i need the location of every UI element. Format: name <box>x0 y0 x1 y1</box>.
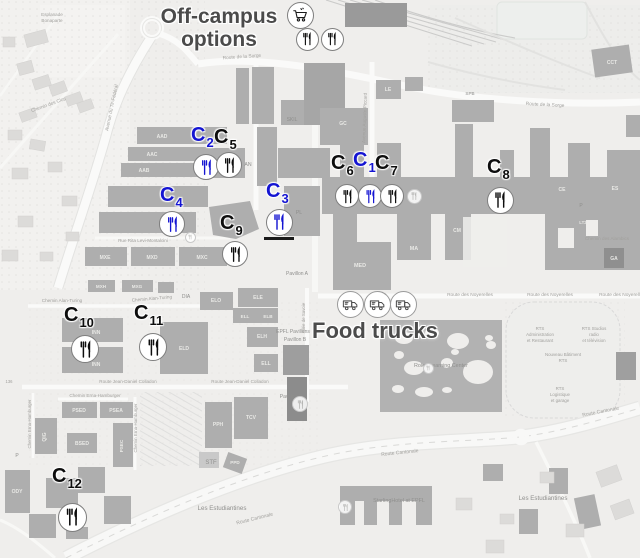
fork-knife-icon <box>75 339 96 360</box>
fork-knife-icon <box>409 191 419 201</box>
food-trucks-heading: Food trucks <box>312 319 438 342</box>
label-C2: C2 <box>191 125 214 149</box>
label-C10-subscript: 10 <box>79 316 93 329</box>
label-C3-subscript: 3 <box>281 192 288 205</box>
label-C4: C4 <box>160 185 183 209</box>
restaurant-marker-C12 <box>58 503 87 532</box>
restaurant-marker-C3 <box>266 209 293 236</box>
fork-knife-icon <box>490 190 510 210</box>
off-campus-heading: Off-campus options <box>146 5 292 51</box>
food-truck-icon <box>341 295 360 314</box>
label-C6-base: C <box>331 153 345 173</box>
label-C8-base: C <box>487 157 501 177</box>
off-campus-line1: Off-campus <box>146 5 292 28</box>
label-C2-subscript: 2 <box>206 136 213 149</box>
label-C5-base: C <box>214 127 228 147</box>
label-C3-base: C <box>266 181 280 201</box>
underline-C3 <box>264 237 294 240</box>
fork-knife-icon <box>341 503 350 512</box>
basemap-restaurant-poi-2 <box>292 396 308 412</box>
fork-knife-icon <box>197 158 216 177</box>
restaurant-marker-C11 <box>139 333 167 361</box>
label-C9: C9 <box>220 213 243 237</box>
food-truck-marker-2 <box>364 291 391 318</box>
fork-knife-icon <box>269 212 289 232</box>
fork-knife-icon <box>362 188 379 205</box>
label-C12-subscript: 12 <box>67 477 81 490</box>
food-truck-marker-3 <box>390 291 417 318</box>
restaurant-marker-C6 <box>335 184 359 208</box>
campus-map-figure: EsplanadeBonaparteChemin des ClosAvenue … <box>0 0 640 558</box>
restaurant-marker-C8 <box>487 187 514 214</box>
label-C5: C5 <box>214 127 237 151</box>
label-C8: C8 <box>487 157 510 181</box>
label-C10: C10 <box>64 305 94 329</box>
off-campus-restaurant-marker-2 <box>321 28 344 51</box>
fork-knife-icon <box>220 156 239 175</box>
fork-knife-icon <box>324 31 340 47</box>
label-C7: C7 <box>375 153 398 177</box>
restaurant-marker-C4 <box>159 211 185 237</box>
fork-knife-icon <box>425 365 431 371</box>
label-C2-base: C <box>191 125 205 145</box>
label-C4-subscript: 4 <box>175 196 182 209</box>
fork-knife-icon <box>226 245 245 264</box>
label-C11-subscript: 11 <box>149 314 163 327</box>
fork-knife-icon <box>295 399 306 410</box>
fork-knife-icon <box>339 188 356 205</box>
label-C9-subscript: 9 <box>235 224 242 237</box>
fork-knife-icon <box>61 506 83 528</box>
label-C11: C11 <box>134 303 163 327</box>
food-truck-marker-1 <box>337 291 364 318</box>
food-truck-icon <box>394 295 413 314</box>
label-C11-base: C <box>134 303 148 323</box>
label-C6: C6 <box>331 153 354 177</box>
label-C6-subscript: 6 <box>346 164 353 177</box>
fork-knife-icon <box>163 215 182 234</box>
label-C12-base: C <box>52 466 66 486</box>
fork-knife-icon <box>384 188 401 205</box>
label-C9-base: C <box>220 213 234 233</box>
basemap-restaurant-poi-4 <box>423 363 434 374</box>
label-C10-base: C <box>64 305 78 325</box>
basemap-restaurant-poi-1 <box>407 189 422 204</box>
restaurant-marker-C10 <box>71 335 99 363</box>
label-C7-subscript: 7 <box>390 164 397 177</box>
off-campus-line2: options <box>146 28 292 51</box>
label-C8-subscript: 8 <box>502 168 509 181</box>
restaurant-marker-C9 <box>222 241 248 267</box>
label-C4-base: C <box>160 185 174 205</box>
restaurant-marker-C5 <box>216 152 242 178</box>
fork-knife-icon <box>299 31 315 47</box>
off-campus-restaurant-marker-1 <box>296 28 319 51</box>
label-C1: C1 <box>353 150 376 174</box>
fork-knife-icon <box>143 337 164 358</box>
label-C3: C3 <box>266 181 289 205</box>
fork-knife-icon <box>187 234 193 240</box>
restaurant-marker-C1 <box>358 184 382 208</box>
restaurant-marker-C2 <box>193 154 219 180</box>
shopping-cart-icon <box>291 6 310 25</box>
basemap-restaurant-poi-5 <box>185 232 196 243</box>
label-C7-base: C <box>375 153 389 173</box>
basemap-restaurant-poi-3 <box>338 500 352 514</box>
label-C1-base: C <box>353 150 367 170</box>
annotation-layer: Off-campus options Food trucks C1 C2 C3 … <box>0 0 640 558</box>
label-C12: C12 <box>52 466 82 490</box>
food-truck-icon <box>368 295 387 314</box>
label-C5-subscript: 5 <box>229 138 236 151</box>
restaurant-marker-C7 <box>380 184 404 208</box>
